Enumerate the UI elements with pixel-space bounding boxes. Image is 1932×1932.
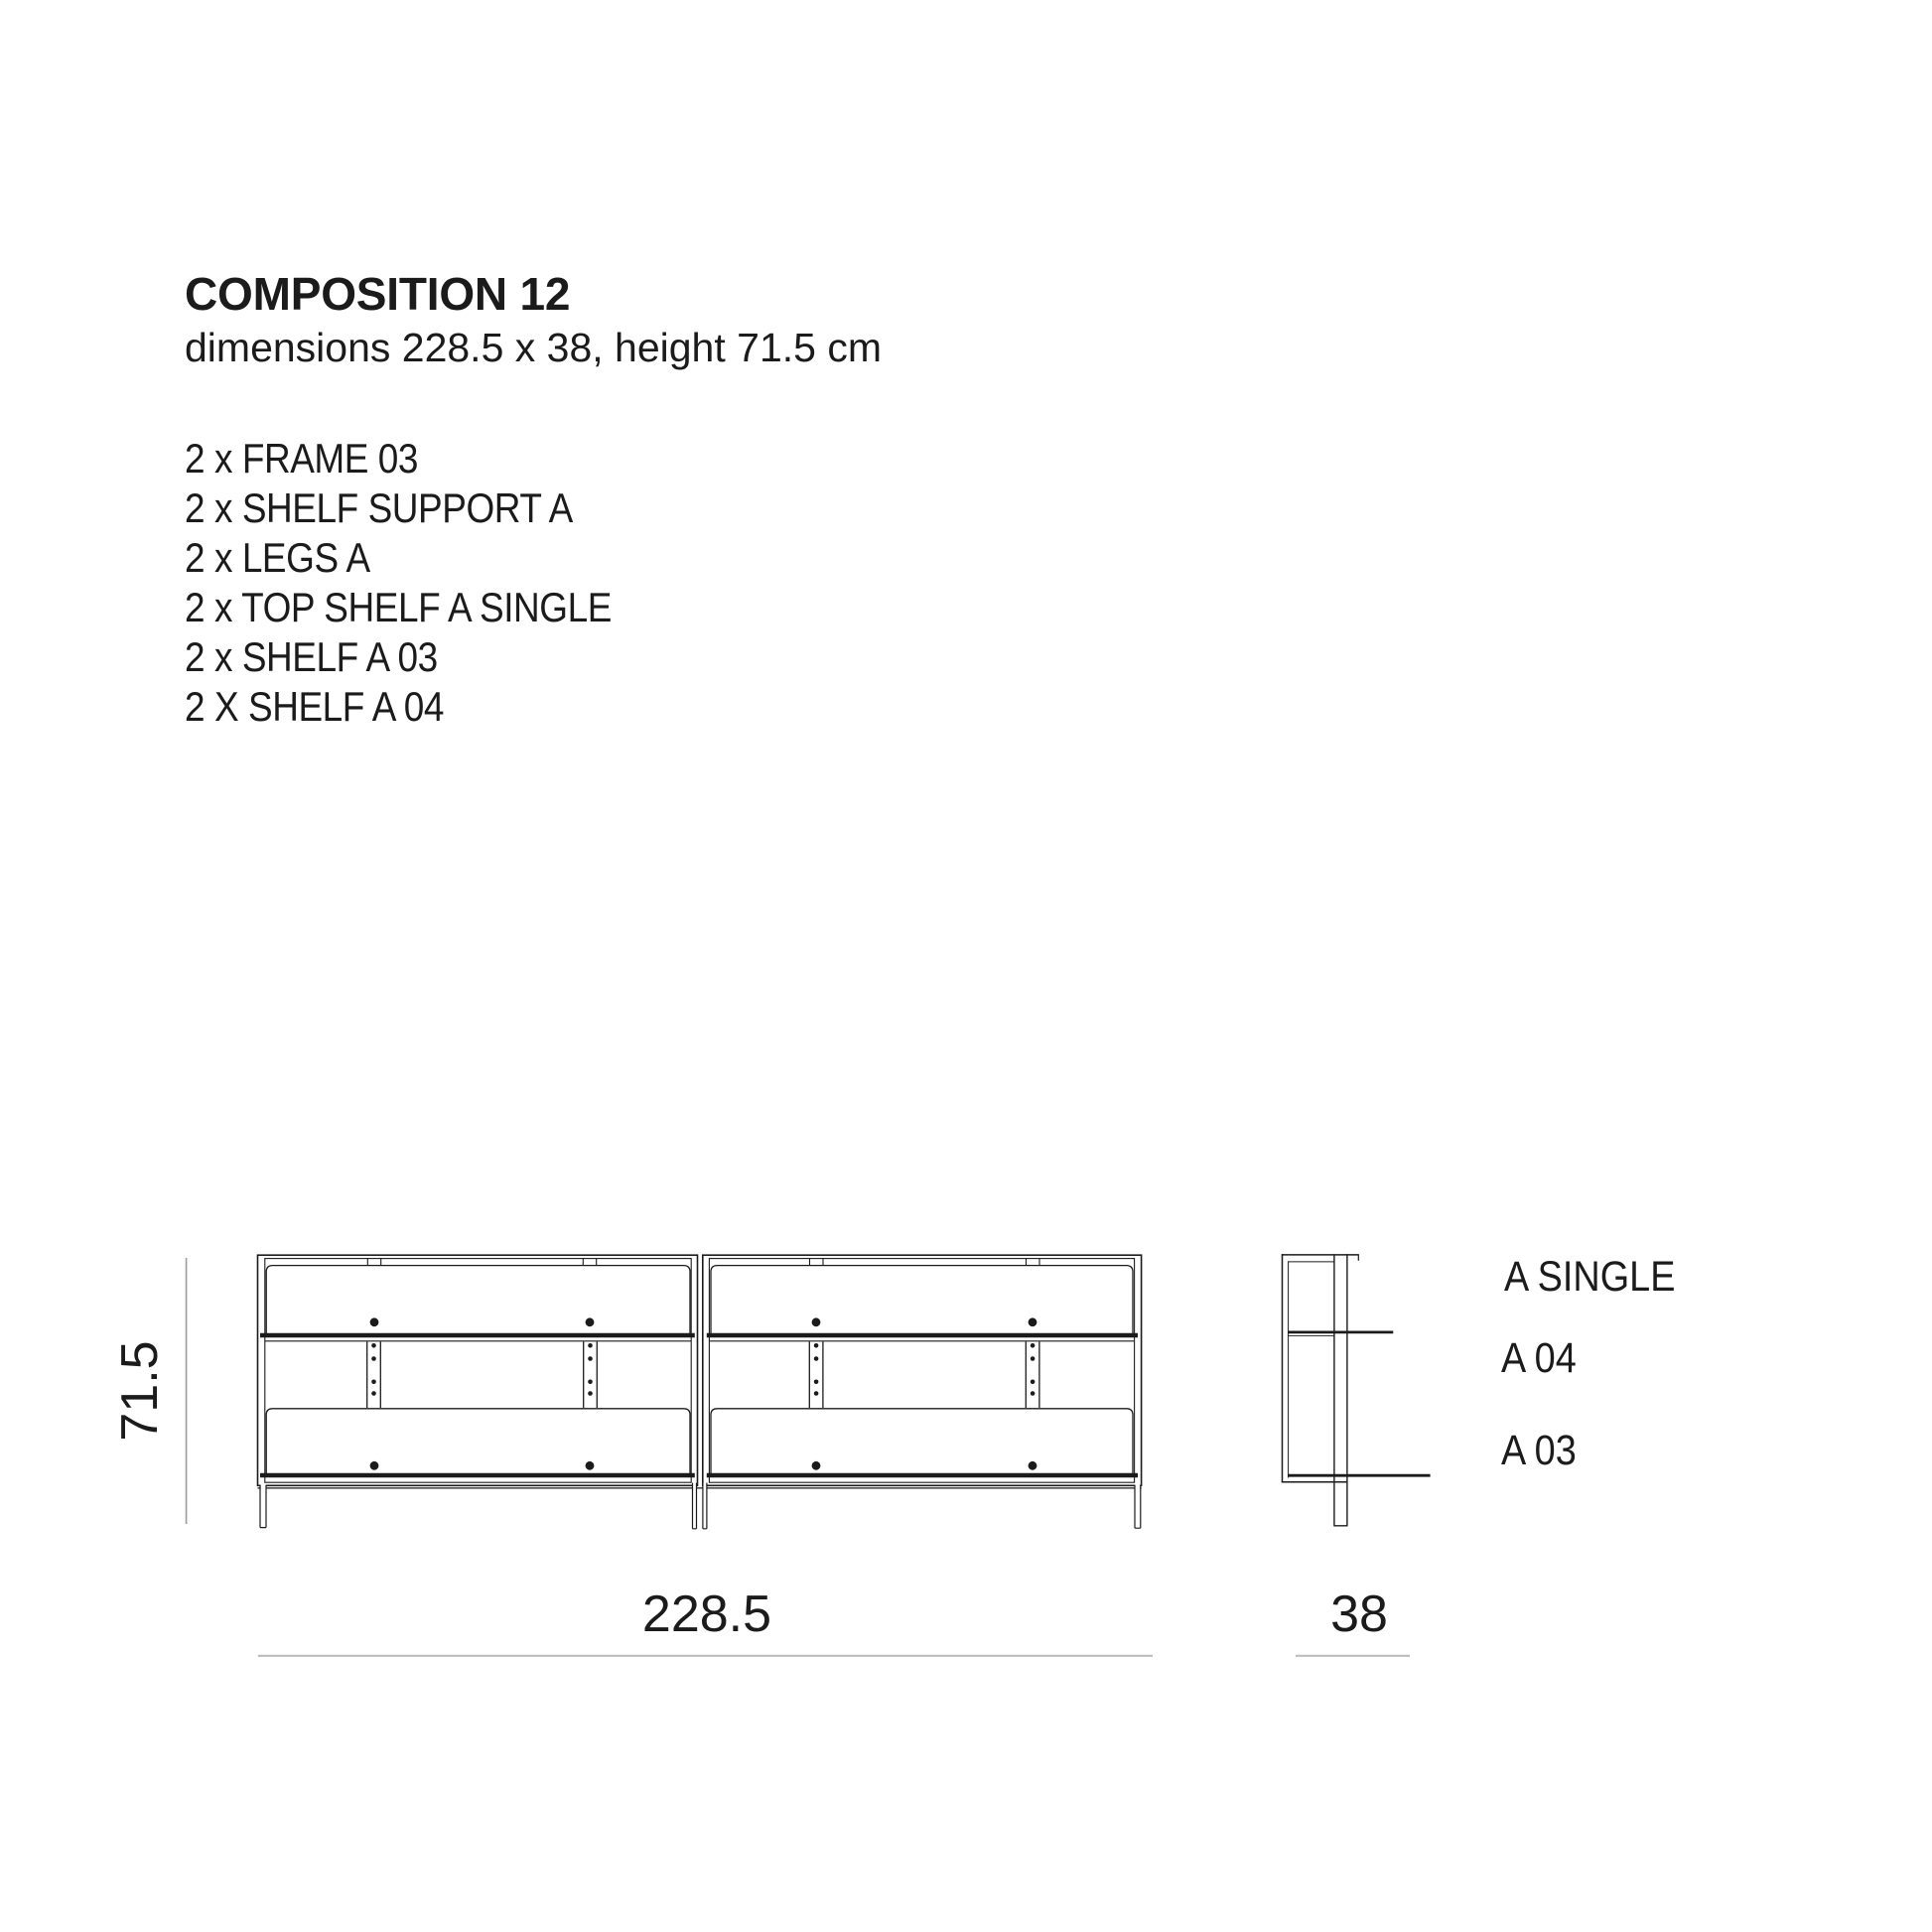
side-shelf-a04	[1288, 1332, 1393, 1336]
top-shelf-panel-1	[260, 1259, 695, 1337]
parts-list-item: 2 x SHELF A 03	[185, 632, 612, 682]
parts-list-item: 2 x SHELF SUPPORT A	[185, 483, 612, 533]
side-view	[1282, 1254, 1431, 1526]
front-view	[258, 1255, 1142, 1529]
catalog-page: COMPOSITION 12 dimensions 228.5 x 38, he…	[0, 0, 1932, 1932]
frame-module-1	[258, 1255, 698, 1485]
side-label-a-04: A 04	[1501, 1333, 1577, 1385]
page-subtitle: dimensions 228.5 x 38, height 71.5 cm	[185, 324, 882, 372]
frame-module-2	[703, 1255, 1142, 1485]
legs	[258, 1483, 1142, 1529]
height-dimension-label: 71.5	[109, 1262, 173, 1520]
shelf-supports-2	[710, 1341, 1134, 1408]
bottom-shelf-panel-2	[707, 1409, 1138, 1476]
page-title: COMPOSITION 12	[185, 267, 570, 322]
parts-list: 2 x FRAME 03 2 x SHELF SUPPORT A 2 x LEG…	[185, 434, 670, 732]
bottom-shelf-panel-1	[260, 1409, 695, 1476]
side-label-a-03: A 03	[1501, 1426, 1577, 1477]
side-label-a-single: A SINGLE	[1504, 1252, 1675, 1304]
side-leg-post	[1333, 1254, 1347, 1526]
parts-list-item: 2 x LEGS A	[185, 533, 612, 583]
width-dimension-label: 228.5	[558, 1584, 856, 1645]
parts-list-item: 2 x FRAME 03	[185, 434, 612, 483]
depth-dimension-label: 38	[1260, 1584, 1458, 1645]
top-shelf-panel-2	[707, 1259, 1138, 1337]
parts-list-item: 2 X SHELF A 04	[185, 682, 612, 732]
parts-list-item: 2 x TOP SHELF A SINGLE	[185, 583, 612, 632]
shelf-supports-1	[265, 1341, 691, 1408]
